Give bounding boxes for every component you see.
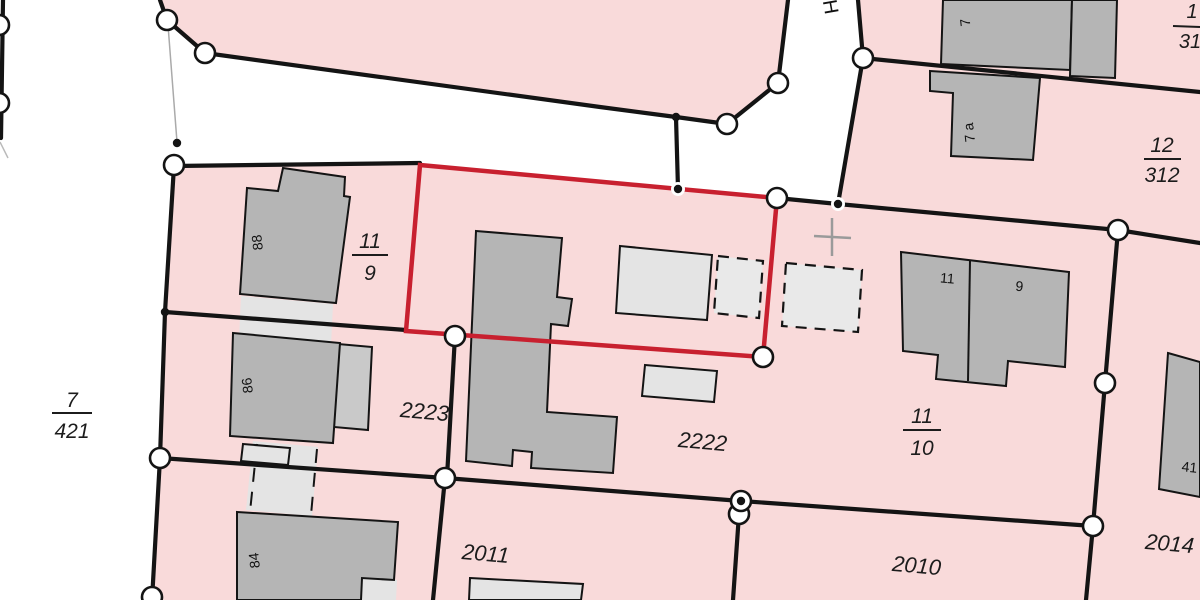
fraction-bar — [1173, 26, 1200, 27]
house-number-9: 9 — [1015, 278, 1024, 295]
house-number-41: 41 — [1181, 458, 1198, 476]
cadastral-map: 2223 2222 2011 2010 2014 7 421 11 9 11 1… — [0, 0, 1200, 600]
building-7-right — [1070, 0, 1117, 78]
house-number-84: 84 — [245, 552, 263, 569]
fraction-11-9-num: 11 — [359, 230, 381, 253]
fraction-12-312-num: 12 — [1150, 134, 1174, 157]
shed-2222 — [642, 365, 717, 402]
fraction-7-421-den: 421 — [54, 420, 89, 443]
fraction-corner-den: 31 — [1179, 31, 1200, 53]
fraction-11-10-num: 11 — [911, 405, 933, 428]
parcel-label-2014[interactable]: 2014 — [1143, 529, 1195, 558]
fraction-11-10-den: 10 — [910, 437, 934, 460]
parcel-label-2222[interactable]: 2222 — [676, 427, 728, 456]
parcel-label-2223[interactable]: 2223 — [398, 397, 451, 426]
planned-building-1 — [714, 256, 763, 318]
step-below-86 — [241, 444, 290, 465]
fraction-7-421-num: 7 — [66, 389, 79, 412]
parcel-label-2011[interactable]: 2011 — [460, 539, 510, 568]
garage-selected-parcel — [616, 246, 712, 320]
fraction-corner-num: 1 — [1186, 1, 1197, 23]
map-canvas[interactable]: 2223 2222 2011 2010 2014 7 421 11 9 11 1… — [0, 0, 1200, 600]
building-7-left — [941, 0, 1072, 70]
house-number-7a: 7 a — [960, 122, 978, 143]
planned-building-2 — [782, 263, 862, 332]
fraction-11-9-den: 9 — [364, 262, 376, 285]
boundary-street-stub — [676, 117, 678, 189]
fraction-12-312-den: 312 — [1144, 164, 1179, 187]
house-number-88: 88 — [248, 234, 266, 251]
boundary-11-9-north — [174, 163, 420, 166]
house-number-86: 86 — [238, 377, 256, 394]
house-number-11: 11 — [939, 269, 955, 286]
parcel-label-2010[interactable]: 2010 — [890, 551, 943, 580]
